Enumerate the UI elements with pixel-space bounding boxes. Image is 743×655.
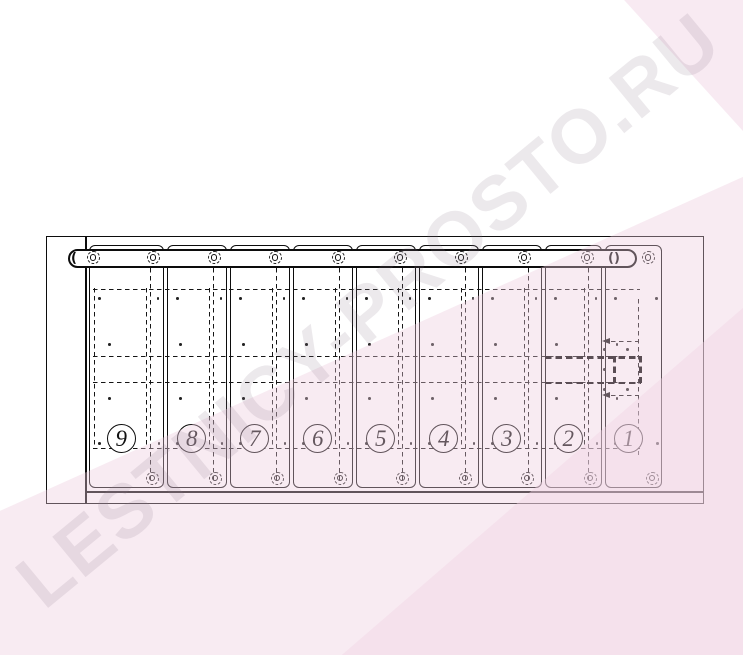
pilot-dot [283, 297, 286, 300]
screw-icon [521, 472, 534, 485]
screw-icon [334, 472, 347, 485]
hidden-edge-vertical [528, 268, 529, 483]
pilot-dot [108, 397, 111, 400]
screw-icon [332, 251, 345, 264]
screw-icon [646, 472, 659, 485]
pilot-dot [655, 297, 658, 300]
leader-line [611, 341, 639, 342]
screw-icon [642, 251, 655, 264]
bracket-rail-edge-bold [545, 356, 641, 359]
pilot-dot [494, 343, 497, 346]
slat-number-badge: 1 [614, 424, 643, 453]
pilot-dot [98, 297, 101, 300]
screw-icon [584, 472, 597, 485]
pilot-dot [242, 343, 245, 346]
pilot-dot [535, 297, 538, 300]
pilot-dot [626, 388, 629, 391]
pilot-dot [239, 297, 242, 300]
pilot-dot [431, 343, 434, 346]
pilot-dot [431, 397, 434, 400]
pilot-dot [603, 368, 606, 371]
pilot-dot [596, 442, 599, 445]
screw-icon [271, 472, 284, 485]
slat-number-badge: 3 [492, 424, 521, 453]
pilot-dot [616, 343, 619, 346]
pilot-dot [157, 297, 160, 300]
slat-number-badge: 6 [303, 424, 332, 453]
pilot-dot [284, 442, 287, 445]
pilot-dot [555, 397, 558, 400]
leader-line [611, 395, 639, 396]
slat-number-badge: 4 [429, 424, 458, 453]
pilot-dot [614, 297, 617, 300]
pilot-dot [368, 397, 371, 400]
pilot-dot [347, 442, 350, 445]
bracket-side-bold [639, 356, 642, 383]
pilot-dot [302, 297, 305, 300]
hidden-edge-vertical [94, 288, 95, 448]
hidden-edge-vertical [146, 288, 147, 448]
screw-icon [87, 251, 100, 264]
bracket-rail-edge-bold [545, 382, 641, 385]
pilot-dot [179, 397, 182, 400]
pilot-dot [494, 397, 497, 400]
pilot-dot [603, 348, 606, 351]
screw-icon [147, 251, 160, 264]
leader-arrow-icon [602, 338, 610, 344]
hidden-edge-vertical [524, 288, 525, 448]
pilot-dot [410, 442, 413, 445]
hidden-edge-vertical [461, 288, 462, 448]
pilot-dot [220, 297, 223, 300]
screw-icon [396, 472, 409, 485]
hidden-edge-vertical [588, 268, 589, 483]
pilot-dot [472, 297, 475, 300]
hidden-edge-vertical [465, 268, 466, 483]
pilot-dot [616, 397, 619, 400]
technical-drawing-page: ( () 987654321 LESTNICY-PROSTO.RU [0, 0, 743, 655]
slat-number-badge: 5 [366, 424, 395, 453]
pilot-dot [179, 343, 182, 346]
pilot-dot [595, 297, 598, 300]
pilot-dot [603, 388, 606, 391]
hidden-edge-vertical [584, 288, 585, 448]
pilot-dot [98, 442, 101, 445]
screw-icon [518, 251, 531, 264]
pilot-dot [176, 297, 179, 300]
rail-end-arc-left: ( [71, 252, 77, 265]
rail-end-arc-right: () [608, 252, 620, 265]
pilot-dot [554, 297, 557, 300]
slat-number-badge: 2 [554, 424, 583, 453]
screw-icon [459, 472, 472, 485]
pilot-dot [491, 297, 494, 300]
pilot-dot [555, 343, 558, 346]
pilot-dot [626, 348, 629, 351]
left-stile-line [85, 236, 87, 504]
pilot-dot [473, 442, 476, 445]
screw-icon [581, 251, 594, 264]
bracket-side-bold [613, 356, 616, 383]
leader-arrow-icon [602, 392, 610, 398]
pilot-dot [108, 343, 111, 346]
screw-icon [269, 251, 282, 264]
pilot-dot [656, 442, 659, 445]
screw-icon [208, 251, 221, 264]
pilot-dot [536, 442, 539, 445]
